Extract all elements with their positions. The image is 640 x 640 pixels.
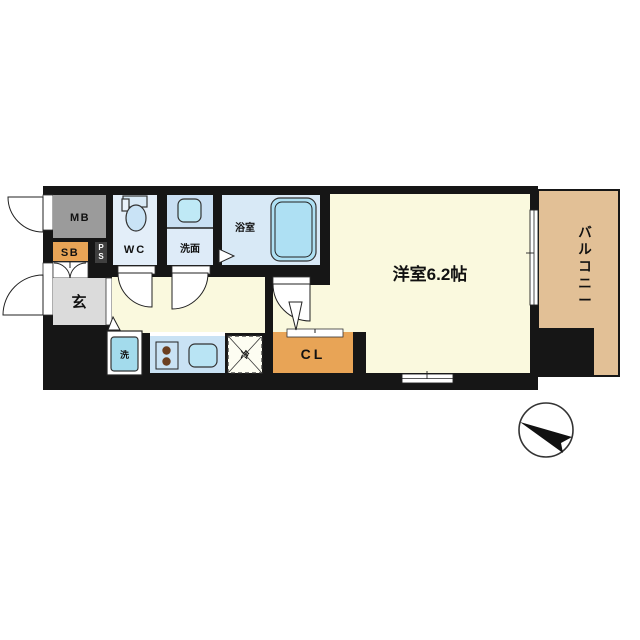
main-room-label: 洋室6.2帖 bbox=[393, 264, 468, 284]
balcony: バルコニー bbox=[537, 190, 619, 376]
room-closet: CL bbox=[273, 329, 353, 373]
compass-icon bbox=[519, 403, 573, 457]
sink-icon bbox=[178, 199, 201, 222]
balcony-wall-block bbox=[537, 328, 594, 375]
room-wc: WC bbox=[113, 195, 157, 265]
pipe-space: PS bbox=[95, 242, 107, 263]
bathtub-icon bbox=[271, 198, 316, 261]
washing-machine-label: 洗 bbox=[120, 349, 129, 360]
room-meter-box: MB bbox=[53, 195, 106, 238]
refrigerator-icon: 冷 bbox=[228, 336, 262, 373]
wc-label: WC bbox=[124, 244, 146, 256]
refrigerator-label: 冷 bbox=[240, 349, 249, 360]
washing-machine-icon: 洗 bbox=[107, 331, 142, 375]
washroom-label: 洗面 bbox=[180, 242, 200, 255]
pipe-space-label: PS bbox=[98, 243, 104, 261]
kitchen-sink-icon bbox=[189, 344, 217, 367]
meter-box-door-opening bbox=[43, 195, 53, 230]
entrance-step bbox=[106, 278, 112, 325]
closet-side-wall bbox=[353, 332, 366, 373]
bathroom-label: 浴室 bbox=[235, 221, 255, 234]
balcony-label: バルコニー bbox=[578, 225, 592, 308]
floor-plan-canvas: バルコニー MB SB PS 玄 WC bbox=[0, 0, 640, 640]
floor-plan-page: バルコニー MB SB PS 玄 WC bbox=[0, 0, 640, 640]
meter-box-label: MB bbox=[70, 212, 90, 224]
shoe-box-label: SB bbox=[61, 247, 79, 259]
room-bathroom: 浴室 bbox=[219, 195, 320, 265]
closet-label: CL bbox=[301, 346, 326, 362]
counter-back-edge bbox=[150, 332, 225, 336]
kitchen-counter bbox=[150, 332, 225, 373]
room-washroom: 洗面 bbox=[167, 195, 213, 265]
entrance-door-opening bbox=[43, 263, 53, 315]
room-shoe-box: SB bbox=[53, 242, 88, 279]
room-entrance: 玄 bbox=[53, 278, 112, 325]
entrance-label: 玄 bbox=[71, 293, 86, 311]
